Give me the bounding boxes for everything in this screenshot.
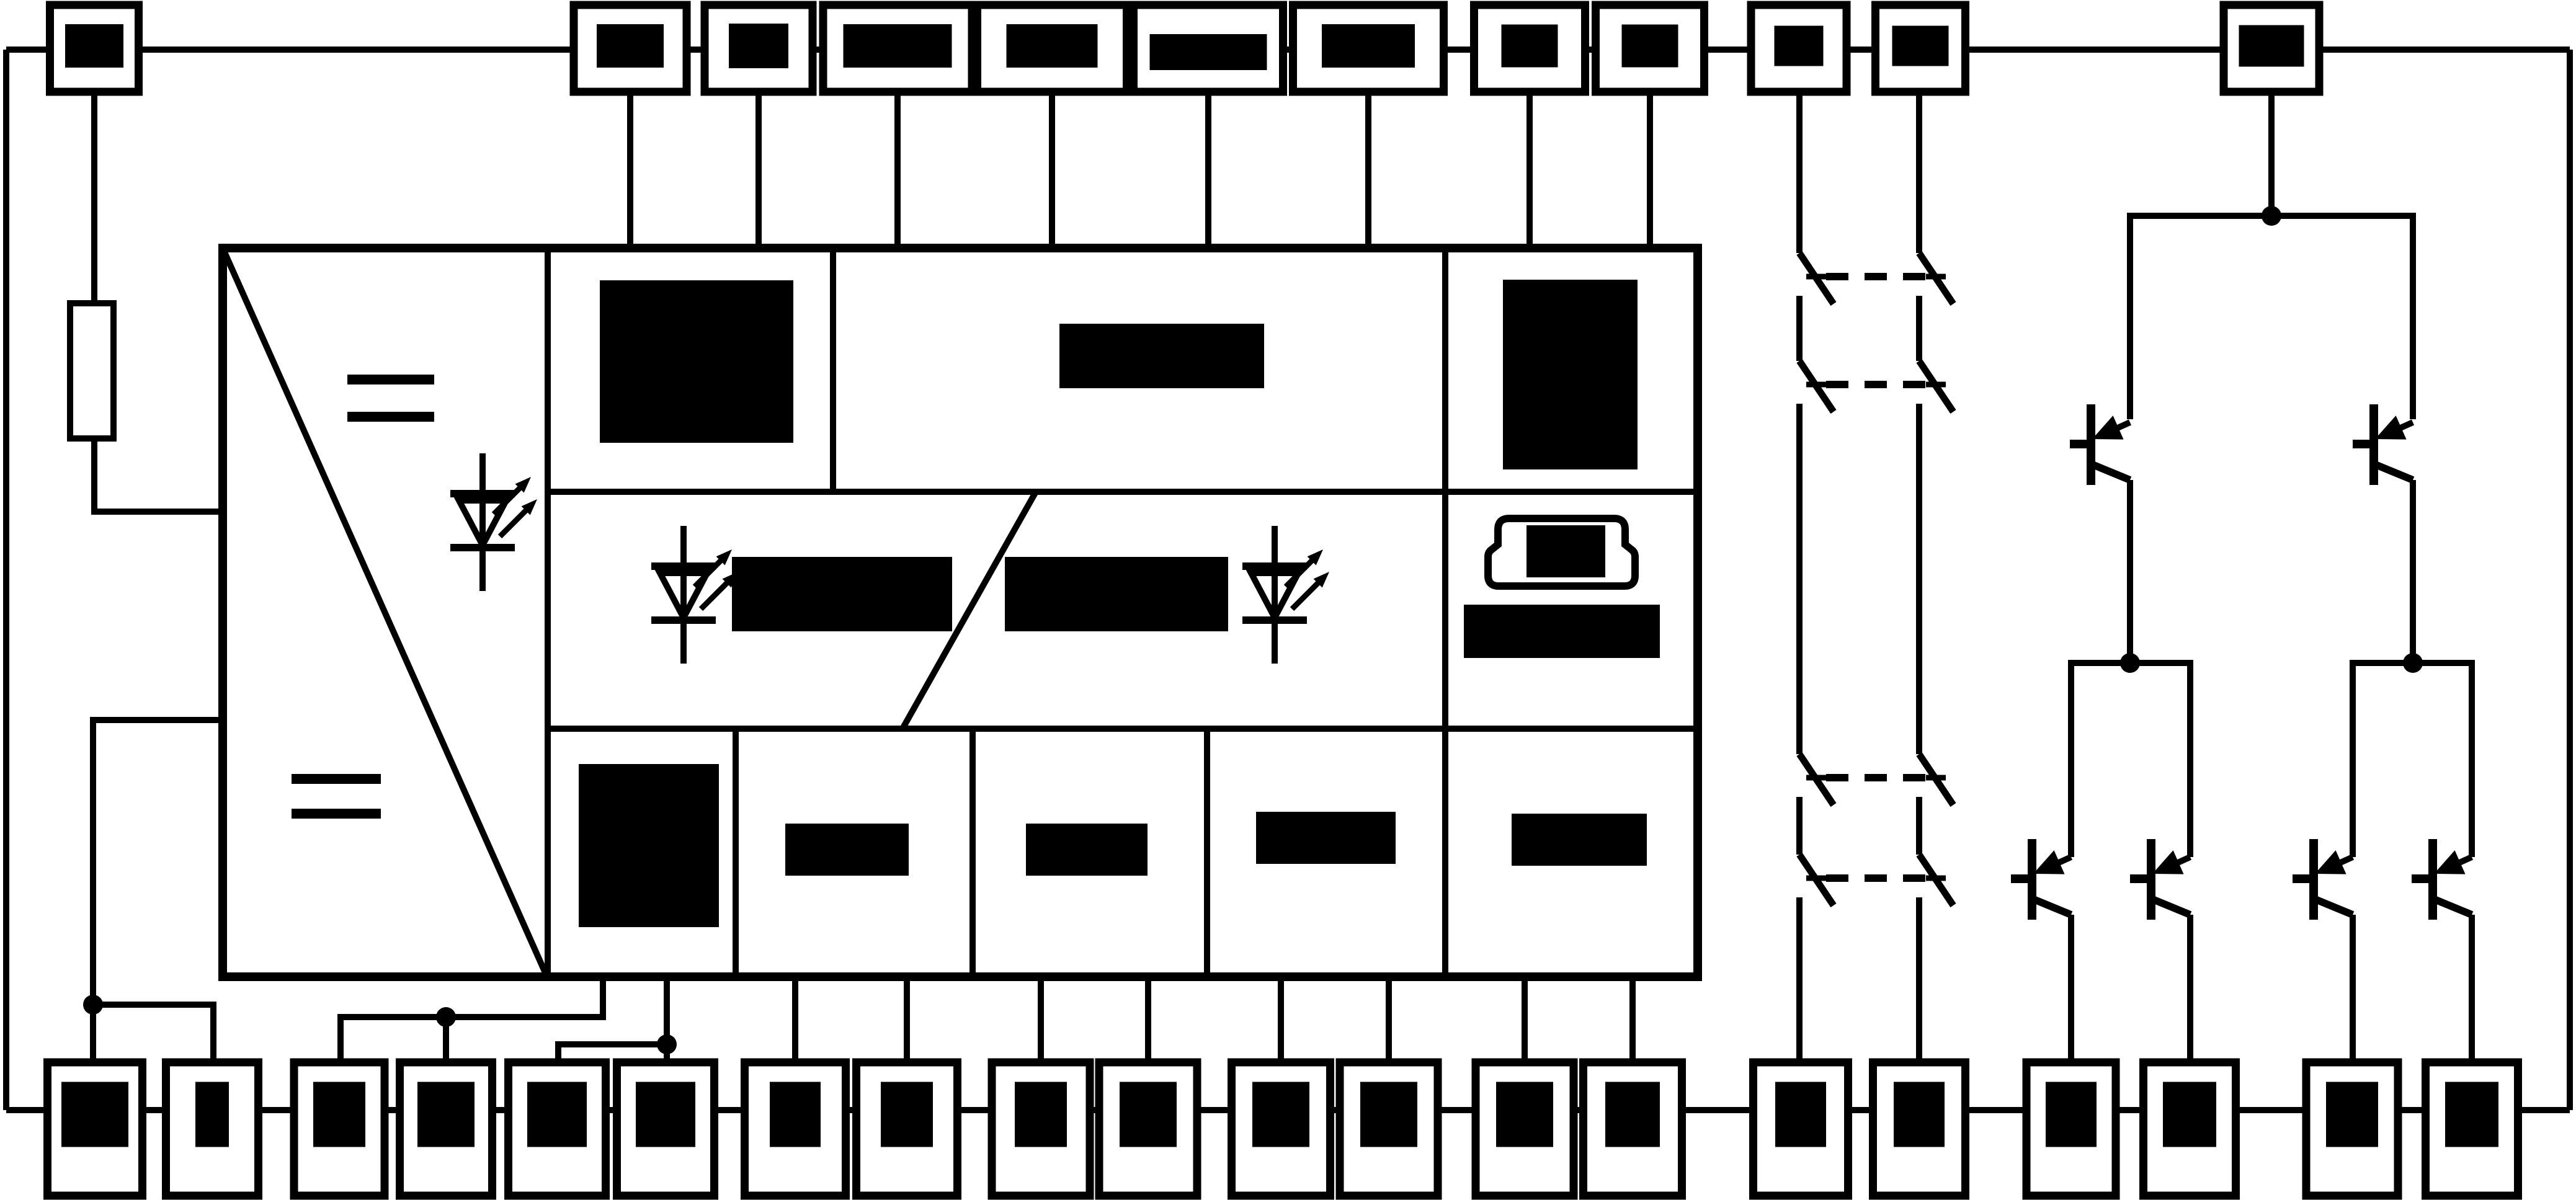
igbt-icon [2130, 839, 2190, 920]
terminal-label [1605, 1082, 1660, 1147]
terminal [1751, 5, 1847, 92]
terminal [1876, 5, 1966, 92]
main-block [223, 248, 1698, 977]
igbt-icon [2412, 839, 2472, 920]
redacted-label [1464, 605, 1660, 658]
usb-connector-pin [1526, 525, 1605, 577]
terminal-label [1775, 1082, 1826, 1147]
terminal [166, 1062, 259, 1196]
terminal-label [1502, 25, 1558, 68]
terminal-label [1775, 26, 1824, 66]
wire [2353, 663, 2472, 857]
terminal [1099, 1062, 1197, 1196]
igbt-icon [2011, 839, 2071, 920]
terminal-label [417, 1082, 475, 1147]
redacted-label [1005, 557, 1228, 631]
terminal [1476, 1062, 1574, 1196]
igbt-emitter-diag [2314, 899, 2353, 915]
terminal [857, 1062, 958, 1196]
terminal-label [195, 1082, 229, 1147]
disconnect-switches [1799, 253, 1953, 905]
terminal [2426, 1062, 2518, 1196]
igbt-icon [2353, 404, 2413, 485]
terminal [1474, 5, 1585, 92]
terminal [294, 1062, 385, 1196]
terminal-label [1015, 1082, 1067, 1147]
wire [93, 720, 223, 1062]
redacted-label [579, 764, 719, 927]
terminal-label [2239, 25, 2304, 67]
igbt-emitter-diag [2374, 464, 2413, 480]
terminal [574, 5, 687, 92]
terminal-label [1622, 25, 1678, 68]
fuse-icon [70, 303, 114, 438]
junction-dot [436, 1007, 456, 1027]
terminal-label [2326, 1082, 2378, 1147]
terminal [2224, 5, 2319, 92]
terminal-label [1322, 24, 1415, 68]
terminal-label [1150, 34, 1267, 70]
terminal [1134, 5, 1283, 92]
igbt-emitter-diag [2151, 899, 2190, 915]
terminal [1873, 1062, 1966, 1196]
terminal [992, 1062, 1090, 1196]
junction-dot [657, 1034, 677, 1054]
terminal-label [597, 24, 664, 68]
terminal [1232, 1062, 1330, 1196]
circuit-diagram-svg [0, 0, 2576, 1200]
redacted-label [1059, 324, 1264, 388]
igbt-emitter-diag [2032, 899, 2071, 915]
terminal [50, 5, 139, 92]
redacted-label [732, 557, 952, 631]
terminal [1596, 5, 1705, 92]
terminal-label [1252, 1082, 1309, 1147]
terminal-label [1892, 26, 1949, 66]
terminal [1584, 1062, 1682, 1196]
terminal-label [1007, 24, 1098, 68]
terminal-label [1894, 1082, 1945, 1147]
wire [341, 977, 603, 1062]
terminal-label [61, 1082, 128, 1147]
terminal [1293, 5, 1444, 92]
terminal-label [527, 1082, 587, 1147]
terminal-label [881, 1082, 933, 1147]
terminal [48, 1062, 143, 1196]
wire [94, 438, 223, 512]
redacted-label [1512, 814, 1647, 866]
junction-dot [2403, 653, 2423, 673]
wire [2071, 663, 2190, 857]
terminal-label [2163, 1082, 2216, 1147]
terminal-label [1120, 1082, 1177, 1147]
terminal-label [2445, 1082, 2498, 1147]
terminal-label [844, 24, 952, 68]
junction-dot [2120, 653, 2140, 673]
circuit-diagram-page [0, 0, 2576, 1200]
fuse-body [70, 303, 114, 438]
junction-dot [83, 995, 103, 1015]
igbt-icon [2070, 404, 2130, 485]
terminal [2026, 1062, 2116, 1196]
terminal-label [2046, 1082, 2097, 1147]
terminal [617, 1062, 715, 1196]
igbt-icon [2293, 839, 2353, 920]
redacted-label [600, 280, 793, 443]
terminal-label [1360, 1082, 1417, 1147]
terminal [509, 1062, 606, 1196]
terminal-label [770, 1082, 821, 1147]
terminal-label [729, 24, 788, 68]
terminal [705, 5, 813, 92]
terminal [823, 5, 972, 92]
terminal-label [313, 1082, 365, 1147]
terminal [2306, 1062, 2398, 1196]
terminal [1340, 1062, 1438, 1196]
redacted-label [785, 824, 909, 876]
junction-dot [2262, 206, 2281, 226]
redacted-label [1256, 812, 1396, 864]
igbt-emitter-diag [2091, 464, 2130, 480]
bottom-terminals [48, 1062, 2518, 1196]
terminal-label [636, 1082, 695, 1147]
terminal-label [65, 24, 123, 68]
terminal [400, 1062, 492, 1196]
redacted-label [1026, 824, 1148, 876]
redacted-label [1503, 280, 1638, 469]
terminal [978, 5, 1127, 92]
terminal [2144, 1062, 2236, 1196]
wire [93, 1005, 213, 1062]
wire [2130, 216, 2413, 419]
terminal-label [1496, 1082, 1553, 1147]
igbt-emitter-diag [2433, 899, 2472, 915]
terminal [1754, 1062, 1848, 1196]
terminal [745, 1062, 846, 1196]
